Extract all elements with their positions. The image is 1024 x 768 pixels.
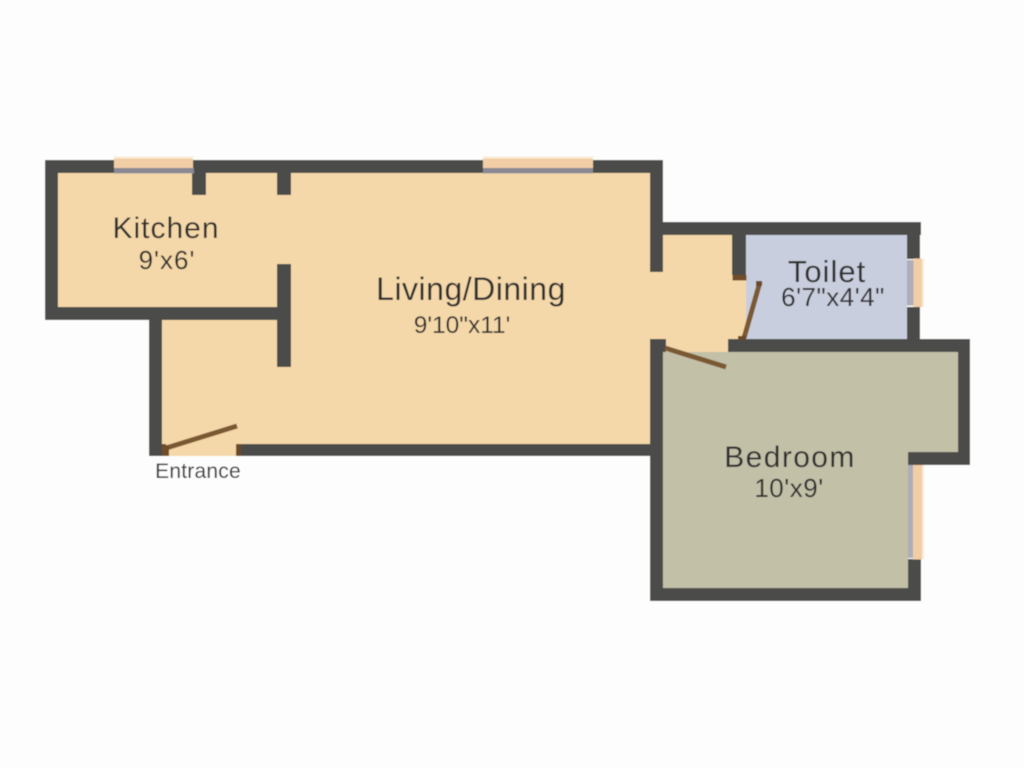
svg-text:Entrance: Entrance [155,460,241,483]
svg-text:Bedroom: Bedroom [724,441,856,474]
svg-text:Kitchen: Kitchen [112,212,219,245]
svg-text:10'x9': 10'x9' [754,473,823,503]
svg-text:Living/Dining: Living/Dining [376,271,566,307]
svg-text:6'7"x4'4": 6'7"x4'4" [781,282,885,312]
svg-text:9'10"x11': 9'10"x11' [414,312,511,339]
svg-text:9'x6': 9'x6' [139,245,196,275]
